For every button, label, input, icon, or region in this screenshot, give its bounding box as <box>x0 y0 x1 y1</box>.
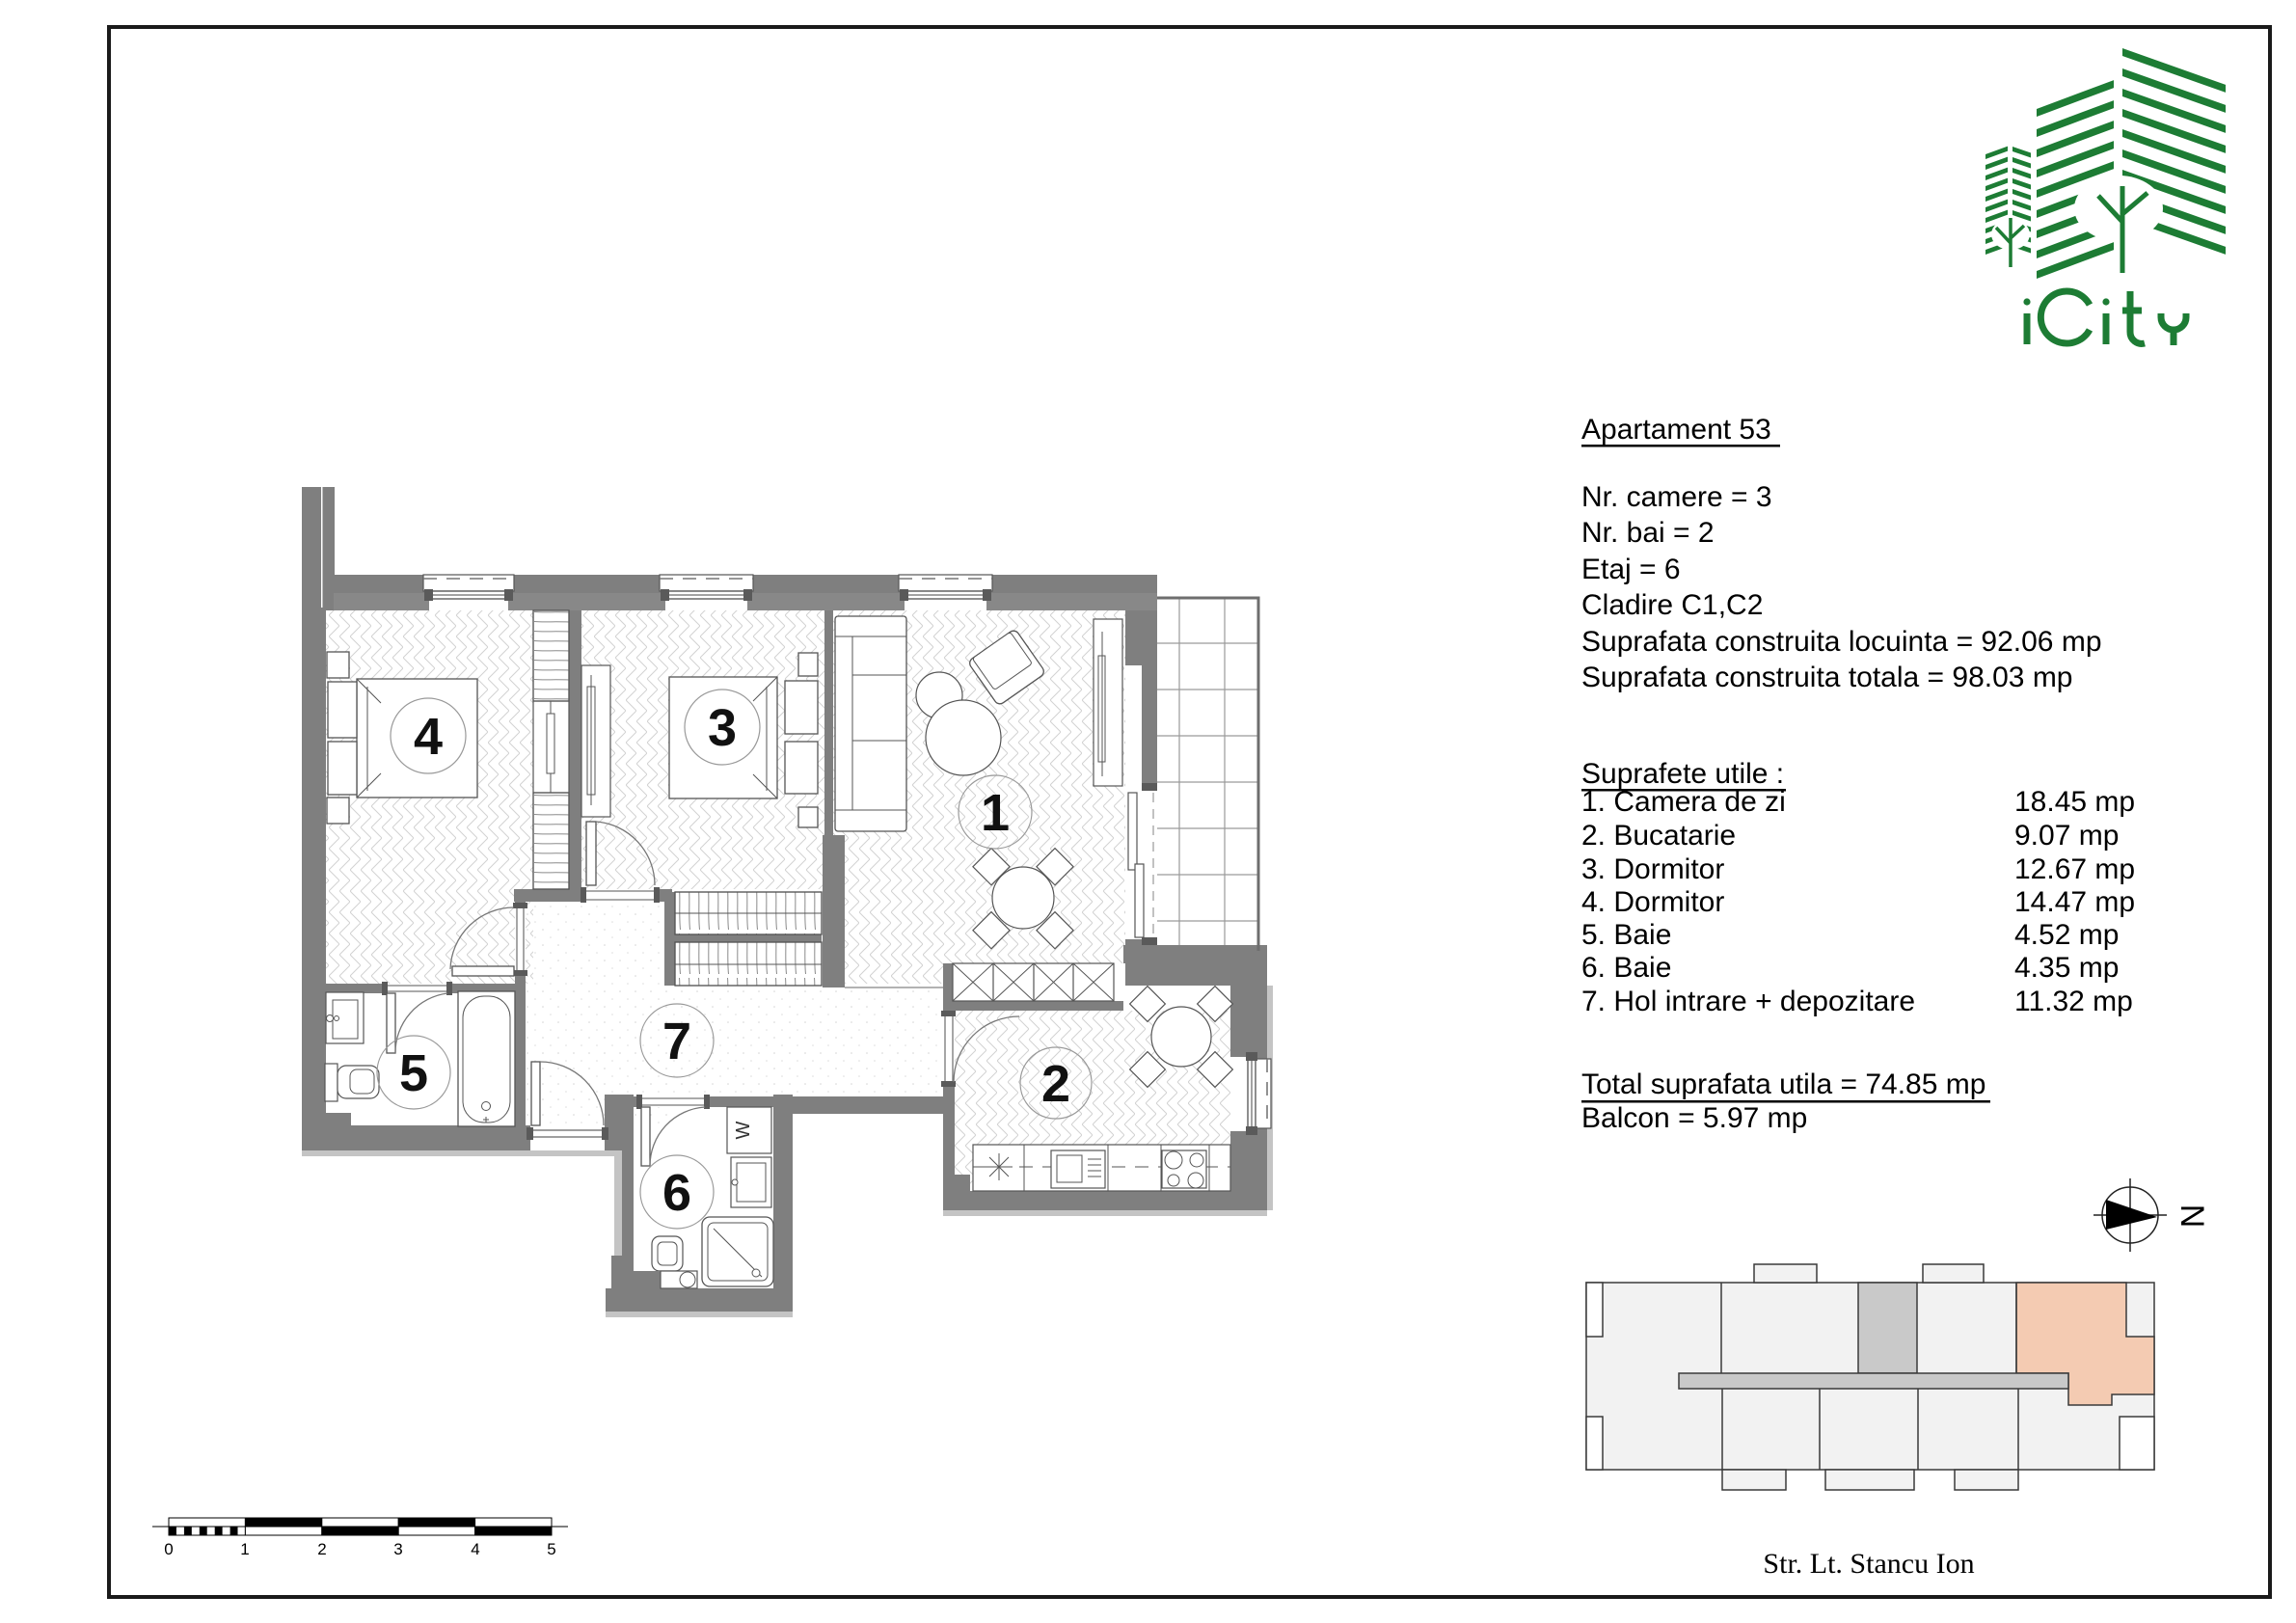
svg-text:N: N <box>2174 1204 2210 1229</box>
svg-text:2. Bucatarie: 2. Bucatarie <box>1581 820 1736 852</box>
svg-text:6. Baie: 6. Baie <box>1581 952 1671 984</box>
svg-text:7: 7 <box>662 1013 691 1070</box>
svg-text:4: 4 <box>414 708 443 766</box>
svg-text:Nr. bai = 2: Nr. bai = 2 <box>1581 517 1715 549</box>
svg-text:1: 1 <box>240 1540 249 1558</box>
svg-text:3: 3 <box>708 699 737 757</box>
svg-text:14.47 mp: 14.47 mp <box>2014 886 2135 918</box>
svg-text:Suprafata construita locuinta: Suprafata construita locuinta = 92.06 mp <box>1581 626 2102 658</box>
svg-text:W: W <box>733 1121 754 1139</box>
svg-text:3: 3 <box>393 1540 402 1558</box>
svg-text:Apartament 53: Apartament 53 <box>1581 414 1771 446</box>
svg-text:4. Dormitor: 4. Dormitor <box>1581 886 1724 918</box>
svg-text:Etaj = 6: Etaj = 6 <box>1581 554 1681 585</box>
svg-text:4: 4 <box>471 1540 479 1558</box>
svg-text:6: 6 <box>662 1164 691 1222</box>
svg-text:2: 2 <box>317 1540 326 1558</box>
svg-text:3. Dormitor: 3. Dormitor <box>1581 853 1724 885</box>
svg-text:Suprafata construita totala =: Suprafata construita totala = 98.03 mp <box>1581 662 2073 693</box>
svg-text:0: 0 <box>164 1540 173 1558</box>
svg-text:4.52 mp: 4.52 mp <box>2014 919 2119 951</box>
svg-text:5. Baie: 5. Baie <box>1581 919 1671 951</box>
svg-text:Balcon = 5.97 mp: Balcon = 5.97 mp <box>1581 1102 1807 1134</box>
svg-text:12.67 mp: 12.67 mp <box>2014 853 2135 885</box>
svg-text:1. Camera de zi: 1. Camera de zi <box>1581 786 1786 818</box>
svg-text:11.32 mp: 11.32 mp <box>2014 986 2133 1017</box>
svg-text:1: 1 <box>981 784 1010 842</box>
svg-text:Str. Lt. Stancu Ion: Str. Lt. Stancu Ion <box>1763 1548 1974 1580</box>
svg-text:Nr. camere = 3: Nr. camere = 3 <box>1581 481 1772 513</box>
svg-text:Total suprafata utila = 74.85: Total suprafata utila = 74.85 mp <box>1581 1068 1985 1100</box>
svg-text:9.07 mp: 9.07 mp <box>2014 820 2119 852</box>
svg-text:7. Hol intrare + depozitare: 7. Hol intrare + depozitare <box>1581 986 1915 1017</box>
svg-text:18.45 mp: 18.45 mp <box>2014 786 2135 818</box>
svg-text:5: 5 <box>399 1044 428 1102</box>
svg-text:4.35 mp: 4.35 mp <box>2014 952 2119 984</box>
svg-text:Cladire C1,C2: Cladire C1,C2 <box>1581 589 1763 621</box>
svg-text:5: 5 <box>547 1540 555 1558</box>
svg-text:2: 2 <box>1041 1055 1070 1113</box>
